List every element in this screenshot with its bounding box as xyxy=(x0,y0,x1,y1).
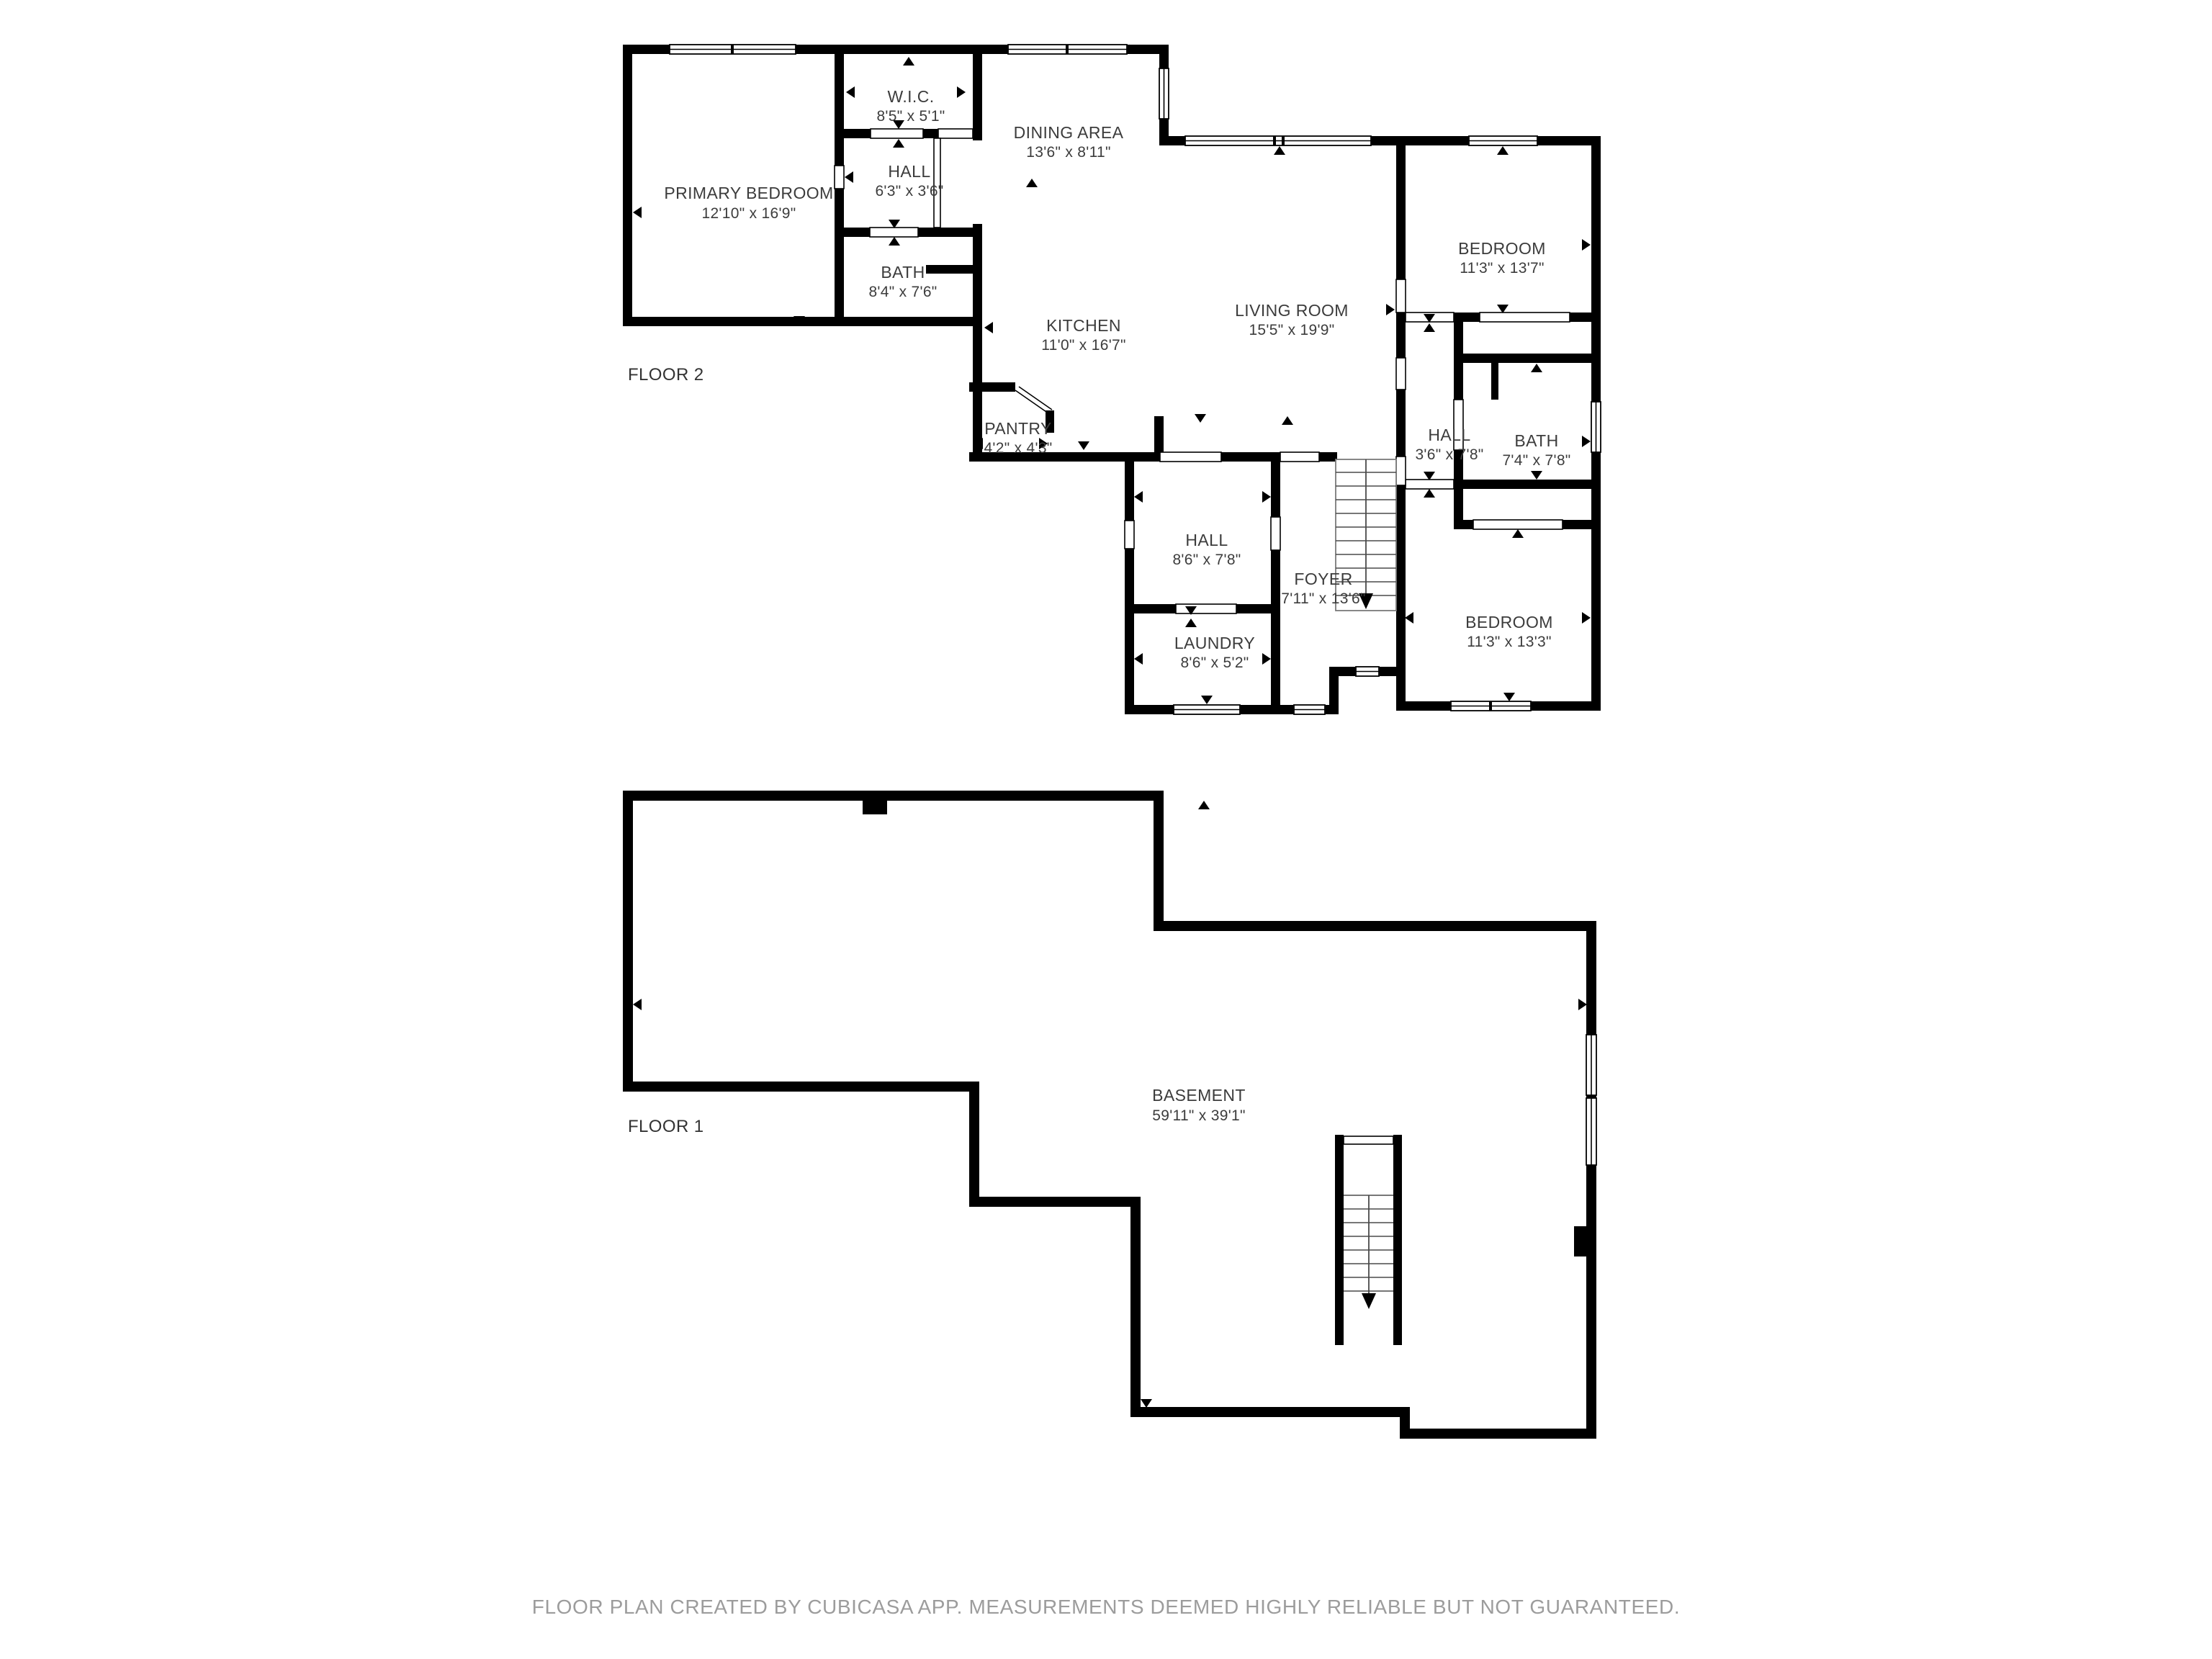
room-label: PANTRY xyxy=(984,419,1052,438)
room-label: BATH xyxy=(881,263,925,282)
room-dims: 6'3" x 3'6" xyxy=(875,183,943,199)
room-label: BATH xyxy=(1514,431,1558,450)
room-dims: 4'2" x 4'3" xyxy=(984,440,1052,457)
room-label: HALL xyxy=(1428,426,1470,444)
room-dims: 8'6" x 7'8" xyxy=(1172,552,1241,568)
room-dims: 15'5" x 19'9" xyxy=(1249,322,1334,338)
window xyxy=(1586,1098,1596,1165)
room-dims: 8'6" x 5'2" xyxy=(1180,655,1249,671)
room-dims: 11'3" x 13'7" xyxy=(1460,260,1545,276)
room-dims: 8'5" x 5'1" xyxy=(876,108,945,125)
floor1-title: FLOOR 1 xyxy=(628,1117,704,1136)
room-label: LIVING ROOM xyxy=(1235,301,1349,320)
floor-plan-page: PRIMARY BEDROOM 12'10" x 16'9" W.I.C. 8'… xyxy=(0,0,2212,1659)
window xyxy=(1159,68,1169,119)
room-label: FOYER xyxy=(1294,570,1352,588)
window xyxy=(1451,701,1531,711)
floor2-title: FLOOR 2 xyxy=(628,365,704,385)
floor2-room-labels: PRIMARY BEDROOM 12'10" x 16'9" W.I.C. 8'… xyxy=(664,87,1570,671)
room-label: HALL xyxy=(888,162,930,181)
pantry-door-diagonal xyxy=(1015,390,1048,413)
room-label: LAUNDRY xyxy=(1174,634,1255,652)
room-label: DINING AREA xyxy=(1014,123,1124,142)
floor1-plan: BASEMENT 59'11" x 39'1" FLOOR 1 xyxy=(628,796,1596,1434)
room-label: BEDROOM xyxy=(1465,613,1553,631)
window xyxy=(1185,136,1371,145)
stairs-down-arrow xyxy=(1362,1293,1376,1309)
window xyxy=(670,45,796,54)
floor1-room-labels: BASEMENT 59'11" x 39'1" xyxy=(1152,1086,1246,1124)
disclaimer-text: FLOOR PLAN CREATED BY CUBICASA APP. MEAS… xyxy=(0,1596,2212,1619)
room-dims: 7'4" x 7'8" xyxy=(1502,452,1570,469)
room-label: BASEMENT xyxy=(1152,1086,1246,1105)
room-label: BEDROOM xyxy=(1458,239,1546,258)
window xyxy=(1469,136,1537,145)
window xyxy=(1586,1035,1596,1095)
room-label: HALL xyxy=(1185,531,1228,549)
floor1-windows xyxy=(1586,1035,1596,1165)
room-dims: 7'11" x 13'6" xyxy=(1281,590,1366,607)
floor-plan-drawing: PRIMARY BEDROOM 12'10" x 16'9" W.I.C. 8'… xyxy=(0,0,2212,1659)
room-label: KITCHEN xyxy=(1046,316,1121,335)
room-label: PRIMARY BEDROOM xyxy=(664,184,833,202)
floor2-measure-arrows xyxy=(633,57,1591,704)
room-dims: 12'10" x 16'9" xyxy=(701,205,796,222)
room-label: W.I.C. xyxy=(887,87,934,106)
window xyxy=(1294,705,1325,714)
window xyxy=(1008,45,1127,54)
window xyxy=(1356,667,1379,676)
room-dims: 8'4" x 7'6" xyxy=(868,284,937,300)
floor2-plan: PRIMARY BEDROOM 12'10" x 16'9" W.I.C. 8'… xyxy=(623,45,1601,714)
room-dims: 13'6" x 8'11" xyxy=(1026,144,1111,161)
basement-outline xyxy=(628,796,1591,1434)
right-wall-tab xyxy=(1574,1226,1591,1256)
room-dims: 11'0" x 16'7" xyxy=(1041,337,1126,354)
top-wall-tab xyxy=(863,796,887,814)
window xyxy=(1174,705,1240,714)
staircase-basement xyxy=(1335,1135,1402,1345)
room-dims: 3'6" x 7'8" xyxy=(1415,446,1483,463)
window xyxy=(1591,402,1601,452)
room-dims: 11'3" x 13'3" xyxy=(1467,634,1552,650)
room-dims: 59'11" x 39'1" xyxy=(1152,1107,1246,1124)
floor1-measure-arrows xyxy=(633,801,1587,1408)
floor2-walls xyxy=(623,45,1601,714)
